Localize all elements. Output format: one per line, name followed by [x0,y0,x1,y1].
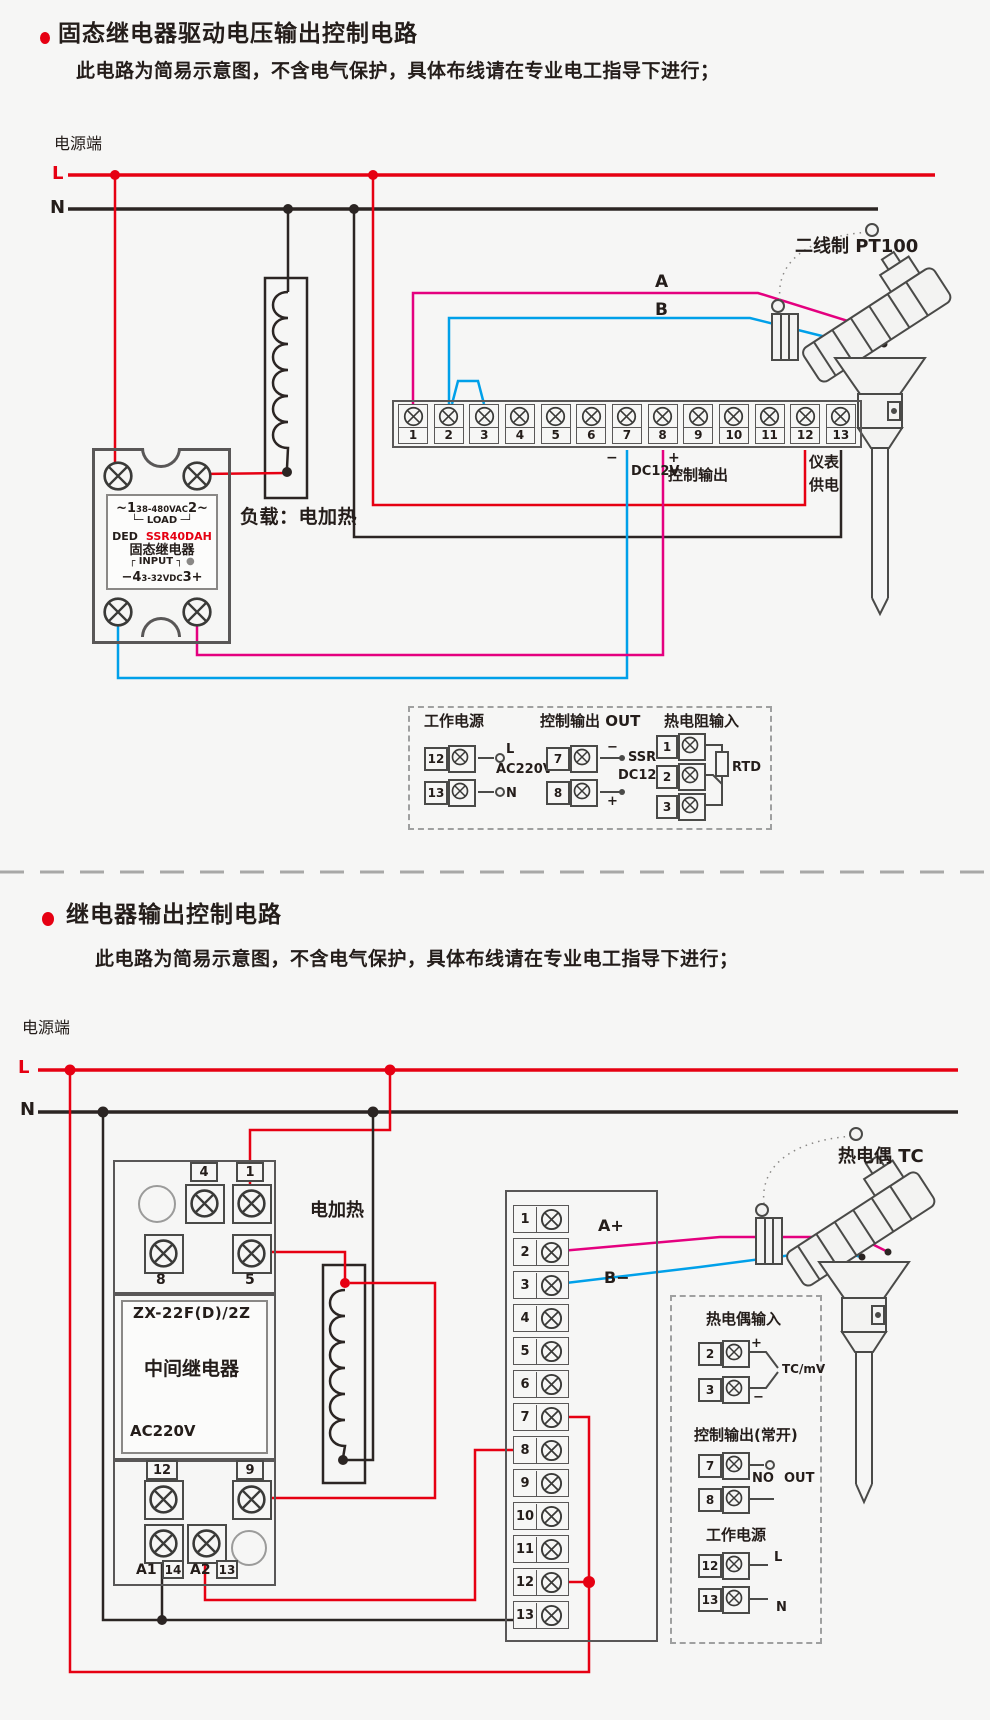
terminal-number: 4 [506,427,534,443]
screw-terminal-icon [795,406,816,427]
section2-note: 此电路为简易示意图，不含电气保护，具体布线请在专业电工指导下进行； [95,948,739,972]
legend-terminal-8: 8 [546,779,598,807]
legend2-no: NO [752,1471,774,1487]
relay-label-14: 14 [162,1560,184,1579]
legend-terminal-t2: 2 [698,1340,750,1368]
power-side-label-2: 电源端 [22,1018,70,1038]
relay-screw-12 [144,1480,184,1520]
legend-terminal-13: 13 [424,779,476,807]
terminal-number: 12 [791,427,819,443]
terminal-cell: 7 [513,1403,569,1431]
heater-label-2: 电加热 [310,1200,364,1223]
legend-terminal-r2: 2 [656,763,706,791]
legend2-minus: − [753,1390,764,1406]
tc-label: 热电偶 TC [838,1146,924,1169]
relay-screw-9 [232,1480,272,1520]
terminal-cell: 10 [719,404,749,444]
ssr-label-panel: ~138-480VAC2~ └─ LOAD ─┘ DEDSSR40DAH 固态继… [106,494,218,590]
section1-note: 此电路为简易示意图，不含电气保护，具体布线请在专业电工指导下进行； [76,60,720,84]
plus-label: + [668,450,680,468]
terminal-number: 11 [514,1537,537,1562]
section2-title: 继电器输出控制电路 [66,901,282,930]
legend-terminal-7: 7 [546,745,598,773]
terminal-cell: 7 [612,404,642,444]
relay-screw-5 [232,1234,272,1274]
relay-screw-4 [185,1184,225,1224]
legend2-plus: + [751,1336,762,1352]
terminal-number: 13 [827,427,855,443]
heater-box-2 [323,1265,365,1483]
legend2-out: OUT [784,1471,814,1487]
legend-terminal-p13: 13 [698,1586,750,1614]
screw-terminal-icon [652,406,673,427]
screw-terminal-icon [540,1571,563,1594]
l-label-1: L [52,163,63,186]
legend2-out-title: 控制输出(常开) [694,1426,798,1445]
relay-screw-1 [232,1184,272,1224]
wire-a-plus-label: A+ [598,1216,624,1236]
screw-terminal-icon [540,1538,563,1561]
terminal-cell: 3 [513,1271,569,1299]
screw-terminal-icon [723,406,744,427]
relay-name: 中间继电器 [144,1358,239,1382]
terminal-number: 10 [514,1504,537,1529]
legend1-rtd-text: RTD [732,760,761,776]
section1-title: 固态继电器驱动电压输出控制电路 [58,20,418,49]
terminal-number: 10 [720,427,748,443]
terminal-number: 7 [514,1405,537,1430]
n-label-1: N [50,197,65,220]
legend1-plus: + [607,794,618,810]
screw-terminal-icon [616,406,637,427]
legend1-n: N [506,786,517,802]
ssr-screw-2 [181,460,213,492]
screw-terminal-icon [438,406,459,427]
legend2-n: N [776,1600,787,1616]
terminal-number: 1 [514,1207,537,1232]
legend1-out-title: 控制输出 OUT [540,712,640,731]
terminal-cell: 13 [826,404,856,444]
load-label: 负载：电加热 [240,506,357,530]
legend1-ssr: SSR [628,750,656,766]
relay-terminal-12: 12 [146,1460,178,1480]
terminal-number: 5 [542,427,570,443]
terminal-number: 9 [514,1471,537,1496]
screw-terminal-icon [688,406,709,427]
screw-terminal-icon [403,406,424,427]
wiring-diagram-page: 固态继电器驱动电压输出控制电路 此电路为简易示意图，不含电气保护，具体布线请在专… [0,0,990,1720]
terminal-cell: 11 [755,404,785,444]
relay-terminal-4: 4 [190,1162,218,1182]
relay-model: ZX-22F(D)/2Z [133,1304,251,1323]
relay-label-a1: A1 [136,1562,157,1580]
terminal-cell: 2 [434,404,464,444]
bullet-icon [42,912,54,926]
screw-terminal-icon [509,406,530,427]
terminal-cell: 12 [513,1568,569,1596]
terminal-number: 2 [435,427,463,443]
relay-voltage: AC220V [130,1422,196,1441]
legend1-rtd-title: 热电阻输入 [664,712,739,731]
terminal-number: 8 [514,1438,537,1463]
terminal-cell: 8 [513,1436,569,1464]
screw-terminal-icon [540,1505,563,1528]
terminal-cell: 8 [648,404,678,444]
relay-terminal-1: 1 [236,1162,264,1182]
wire-b-label: B [655,300,668,321]
ssr-screw-3 [181,596,213,628]
screw-terminal-icon [540,1307,563,1330]
heater-coil-1 [273,292,288,468]
legend1-power-title: 工作电源 [424,712,484,731]
relay-screw-8 [144,1234,184,1274]
legend-terminal-r3: 3 [656,793,706,821]
legend-terminal-r1: 1 [656,733,706,761]
legend2-tc-title: 热电偶输入 [706,1310,781,1329]
legend-terminal-t3: 3 [698,1376,750,1404]
terminal-cell: 4 [505,404,535,444]
terminal-cell: 3 [469,404,499,444]
minus-label: − [606,450,618,468]
ctrl-out-label: 控制输出 [668,466,728,485]
heater-coil-2 [330,1290,345,1458]
relay-screw-a2 [187,1524,227,1564]
relay-terminal-9: 9 [236,1460,264,1480]
terminal-number: 4 [514,1306,537,1331]
legend-terminal-12: 12 [424,745,476,773]
terminal-cell: 6 [513,1370,569,1398]
wire-a-label: A [655,272,668,293]
legend2-tcmv: TC/mV [782,1362,825,1377]
legend-terminal-o8: 8 [698,1486,750,1514]
terminal-number: 11 [756,427,784,443]
ssr-screw-4 [102,596,134,628]
relay-screw-a1 [144,1524,184,1564]
wire-b-minus-label: B− [604,1268,630,1288]
terminal-number: 3 [514,1273,537,1298]
meter-label: 仪表 [809,453,839,472]
power-side-label-1: 电源端 [54,134,102,154]
relay-label-13: 13 [216,1560,238,1579]
screw-terminal-icon [540,1274,563,1297]
terminal-number: 7 [613,427,641,443]
terminal-cell: 6 [576,404,606,444]
terminal-number: 6 [514,1372,537,1397]
screw-terminal-icon [540,1604,563,1627]
relay-label-8: 8 [156,1272,166,1290]
terminal-number: 8 [649,427,677,443]
screw-terminal-icon [759,406,780,427]
relay-indicator-ring [138,1185,176,1223]
screw-terminal-icon [540,1373,563,1396]
ssr-screw-1 [102,460,134,492]
terminal-cell: 5 [513,1337,569,1365]
legend2-power-title: 工作电源 [706,1526,766,1545]
screw-terminal-icon [540,1340,563,1363]
terminal-number: 13 [514,1603,537,1628]
terminal-number: 12 [514,1570,537,1595]
ssr-input-label: ┌ INPUT ┐ ● [129,557,195,568]
terminal-cell: 12 [790,404,820,444]
terminal-cell: 4 [513,1304,569,1332]
screw-terminal-icon [830,406,851,427]
terminal-cell: 9 [683,404,713,444]
screw-terminal-icon [540,1241,563,1264]
terminal-number: 9 [684,427,712,443]
legend1-l: L [506,742,514,758]
terminal-cell: 2 [513,1238,569,1266]
terminal-strip-2: 1 2 3 4 5 6 7 8 [505,1190,658,1642]
screw-terminal-icon [540,1439,563,1462]
relay-label-a2: A2 [190,1562,211,1580]
legend1-ac220v: AC220V [496,762,553,778]
legend1-minus: − [607,740,618,756]
terminal-number: 2 [514,1240,537,1265]
terminal-cell: 5 [541,404,571,444]
supply-label: 供电 [809,476,839,495]
terminal-cell: 9 [513,1469,569,1497]
l-label-2: L [18,1057,29,1080]
screw-terminal-icon [545,406,566,427]
screw-terminal-icon [540,1472,563,1495]
screw-terminal-icon [581,406,602,427]
terminal-cell: 1 [513,1205,569,1233]
legend-terminal-p12: 12 [698,1552,750,1580]
bullet-icon [40,32,50,44]
screw-terminal-icon [540,1406,563,1429]
n-label-2: N [20,1099,35,1122]
screw-terminal-icon [474,406,495,427]
legend2-l: L [774,1550,782,1566]
terminal-cell: 10 [513,1502,569,1530]
terminal-cell: 13 [513,1601,569,1629]
pt100-label: 二线制 PT100 [795,236,918,259]
relay-label-5: 5 [245,1272,255,1290]
screw-terminal-icon [540,1208,563,1231]
terminal-cell: 1 [398,404,428,444]
terminal-number: 6 [577,427,605,443]
terminal-cell: 11 [513,1535,569,1563]
terminal-number: 3 [470,427,498,443]
terminal-number: 5 [514,1339,537,1364]
heater-box-1 [265,278,307,498]
terminal-number: 1 [399,427,427,443]
legend-terminal-o7: 7 [698,1452,750,1480]
terminal-strip-1: 1 2 3 4 5 6 7 8 [392,400,862,448]
